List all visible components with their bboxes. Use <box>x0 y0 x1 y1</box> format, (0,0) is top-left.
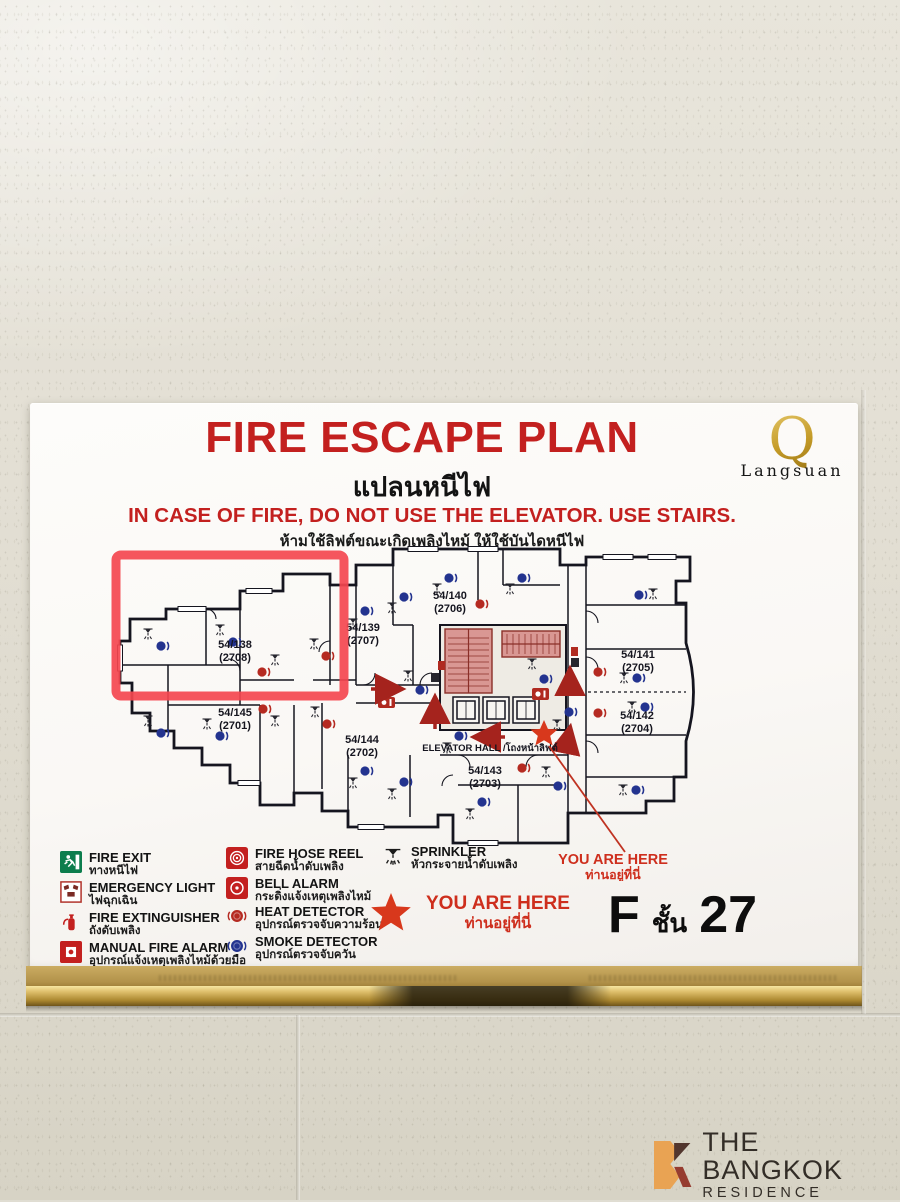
legend-label-thai: กระดิ่งแจ้งเหตุเพลิงไหม้ <box>255 891 371 904</box>
legend-item-sprinkler: SPRINKLER หัวกระจายน้ำดับเพลิง <box>382 845 518 872</box>
unit-label: 54/142 <box>620 710 654 722</box>
legend-label-thai: ทางหนีไฟ <box>89 865 151 878</box>
legend-you-are-here-text: YOU ARE HERE <box>426 893 570 915</box>
unit-room: (2708) <box>219 652 251 664</box>
brass-rail <box>26 966 862 1012</box>
unit-label: 54/141 <box>621 649 655 661</box>
manual-fire-alarm-icon <box>60 941 82 963</box>
unit-room: (2701) <box>219 720 251 732</box>
legend-item-fire-extinguisher: FIRE EXTINGUISHER ถังดับเพลิง <box>60 911 220 938</box>
unit-label: 54/144 <box>345 734 380 746</box>
unit-highlight-box <box>116 555 344 696</box>
sign-warning: IN CASE OF FIRE, DO NOT USE THE ELEVATOR… <box>18 504 846 528</box>
floor-number: 27 <box>699 885 757 945</box>
fire-exit-icon <box>60 851 82 873</box>
unit-room: (2707) <box>347 635 379 647</box>
unit-room: (2703) <box>469 778 501 790</box>
tile-joint-right <box>861 390 866 1014</box>
tile-joint-vertical <box>296 1015 300 1200</box>
you-are-here-star-icon <box>368 891 414 935</box>
fire-escape-plan-sign: FIRE ESCAPE PLAN แปลนหนีไฟ IN CASE OF FI… <box>30 403 858 969</box>
legend-label-thai: หัวกระจายน้ำดับเพลิง <box>411 859 518 872</box>
legend-label-thai: อุปกรณ์ตรวจจับความร้อน <box>255 919 383 932</box>
legend-item-bell-alarm: BELL ALARM กระดิ่งแจ้งเหตุเพลิงไหม้ <box>226 877 371 904</box>
legend-item-heat-detector: HEAT DETECTOR อุปกรณ์ตรวจจับความร้อน <box>226 905 383 932</box>
legend-label: SMOKE DETECTOR <box>255 935 378 949</box>
legend-item-manual-fire-alarm: MANUAL FIRE ALARM อุปกรณ์แจ้งเหตุเพลิงไห… <box>60 941 246 968</box>
unit-room: (2702) <box>346 747 378 759</box>
legend-item-emergency-light: EMERGENCY LIGHT ไฟฉุกเฉิน <box>60 881 215 908</box>
unit-label: 54/143 <box>468 765 502 777</box>
unit-label: 54/139 <box>346 622 380 634</box>
rail-shadow <box>26 1006 862 1012</box>
unit-label: 54/145 <box>218 707 252 719</box>
sprinkler-icon <box>382 845 404 867</box>
floor-indicator: F ชั้น 27 <box>608 885 757 945</box>
legend-label: HEAT DETECTOR <box>255 905 383 919</box>
you-are-here-text: YOU ARE HERE <box>558 852 668 868</box>
legend-item-you-are-here: YOU ARE HERE ท่านอยู่ที่นี่ <box>368 891 570 935</box>
bell-alarm-icon <box>226 877 248 899</box>
rail-reflection <box>586 975 836 981</box>
unit-room: (2706) <box>434 603 466 615</box>
legend-you-are-here-thai: ท่านอยู่ที่นี่ <box>426 915 570 933</box>
unit-labels: 54/138 (2708) 54/145 (2701) 54/139 (2707… <box>218 590 655 790</box>
legend-label: MANUAL FIRE ALARM <box>89 941 246 955</box>
legend-item-fire-hose-reel: FIRE HOSE REEL สายฉีดน้ำดับเพลิง <box>226 847 363 874</box>
emergency-light-icon <box>60 881 82 903</box>
bangkok-residence-watermark: THE BANGKOK RESIDENCE <box>654 1128 900 1202</box>
brass-rail-top <box>26 966 862 986</box>
legend-label: SPRINKLER <box>411 845 518 859</box>
fire-hose-reel-icon <box>226 847 248 869</box>
unit-room: (2704) <box>621 723 653 735</box>
rail-dark-reflection <box>369 986 611 1006</box>
q-logo-name: Langsuan <box>730 461 854 480</box>
legend-label-thai: อุปกรณ์ตรวจจับควัน <box>255 949 378 962</box>
floor-letter: F <box>608 885 640 945</box>
smoke-detector-icon <box>226 935 248 957</box>
tile-joint-horizontal <box>0 1013 900 1017</box>
floor-plan: 54/138 (2708) 54/145 (2701) 54/139 (2707… <box>108 545 730 881</box>
legend-item-fire-exit: FIRE EXIT ทางหนีไฟ <box>60 851 151 878</box>
legend-label-thai: ไฟฉุกเฉิน <box>89 895 215 908</box>
legend-label: BELL ALARM <box>255 877 371 891</box>
q-logo-initial: Q <box>730 409 854 469</box>
unit-label: 54/140 <box>433 590 467 602</box>
legend-label: FIRE HOSE REEL <box>255 847 363 861</box>
legend-label: FIRE EXTINGUISHER <box>89 911 220 925</box>
fire-extinguisher-icon <box>60 911 82 933</box>
watermark-line2: RESIDENCE <box>702 1184 900 1202</box>
legend-label: FIRE EXIT <box>89 851 151 865</box>
legend-label-thai: สายฉีดน้ำดับเพลิง <box>255 861 363 874</box>
q-langsuan-logo: Q Langsuan <box>730 409 854 480</box>
sign-title-thai: แปลนหนีไฟ <box>8 465 836 508</box>
legend-label: EMERGENCY LIGHT <box>89 881 215 895</box>
heat-detector-icon <box>226 905 248 927</box>
legend-label-thai: ถังดับเพลิง <box>89 925 220 938</box>
unit-label: 54/138 <box>218 639 252 651</box>
watermark-line1: THE BANGKOK <box>702 1128 900 1184</box>
legend-item-smoke-detector: SMOKE DETECTOR อุปกรณ์ตรวจจับควัน <box>226 935 378 962</box>
unit-room: (2705) <box>622 662 654 674</box>
rail-reflection <box>156 975 456 981</box>
floor-thai: ชั้น <box>652 903 687 944</box>
you-are-here-text-thai: ท่านอยู่ที่นี่ <box>585 866 641 881</box>
bangkok-residence-mark-icon <box>654 1140 692 1190</box>
sign-title: FIRE ESCAPE PLAN <box>8 413 836 463</box>
